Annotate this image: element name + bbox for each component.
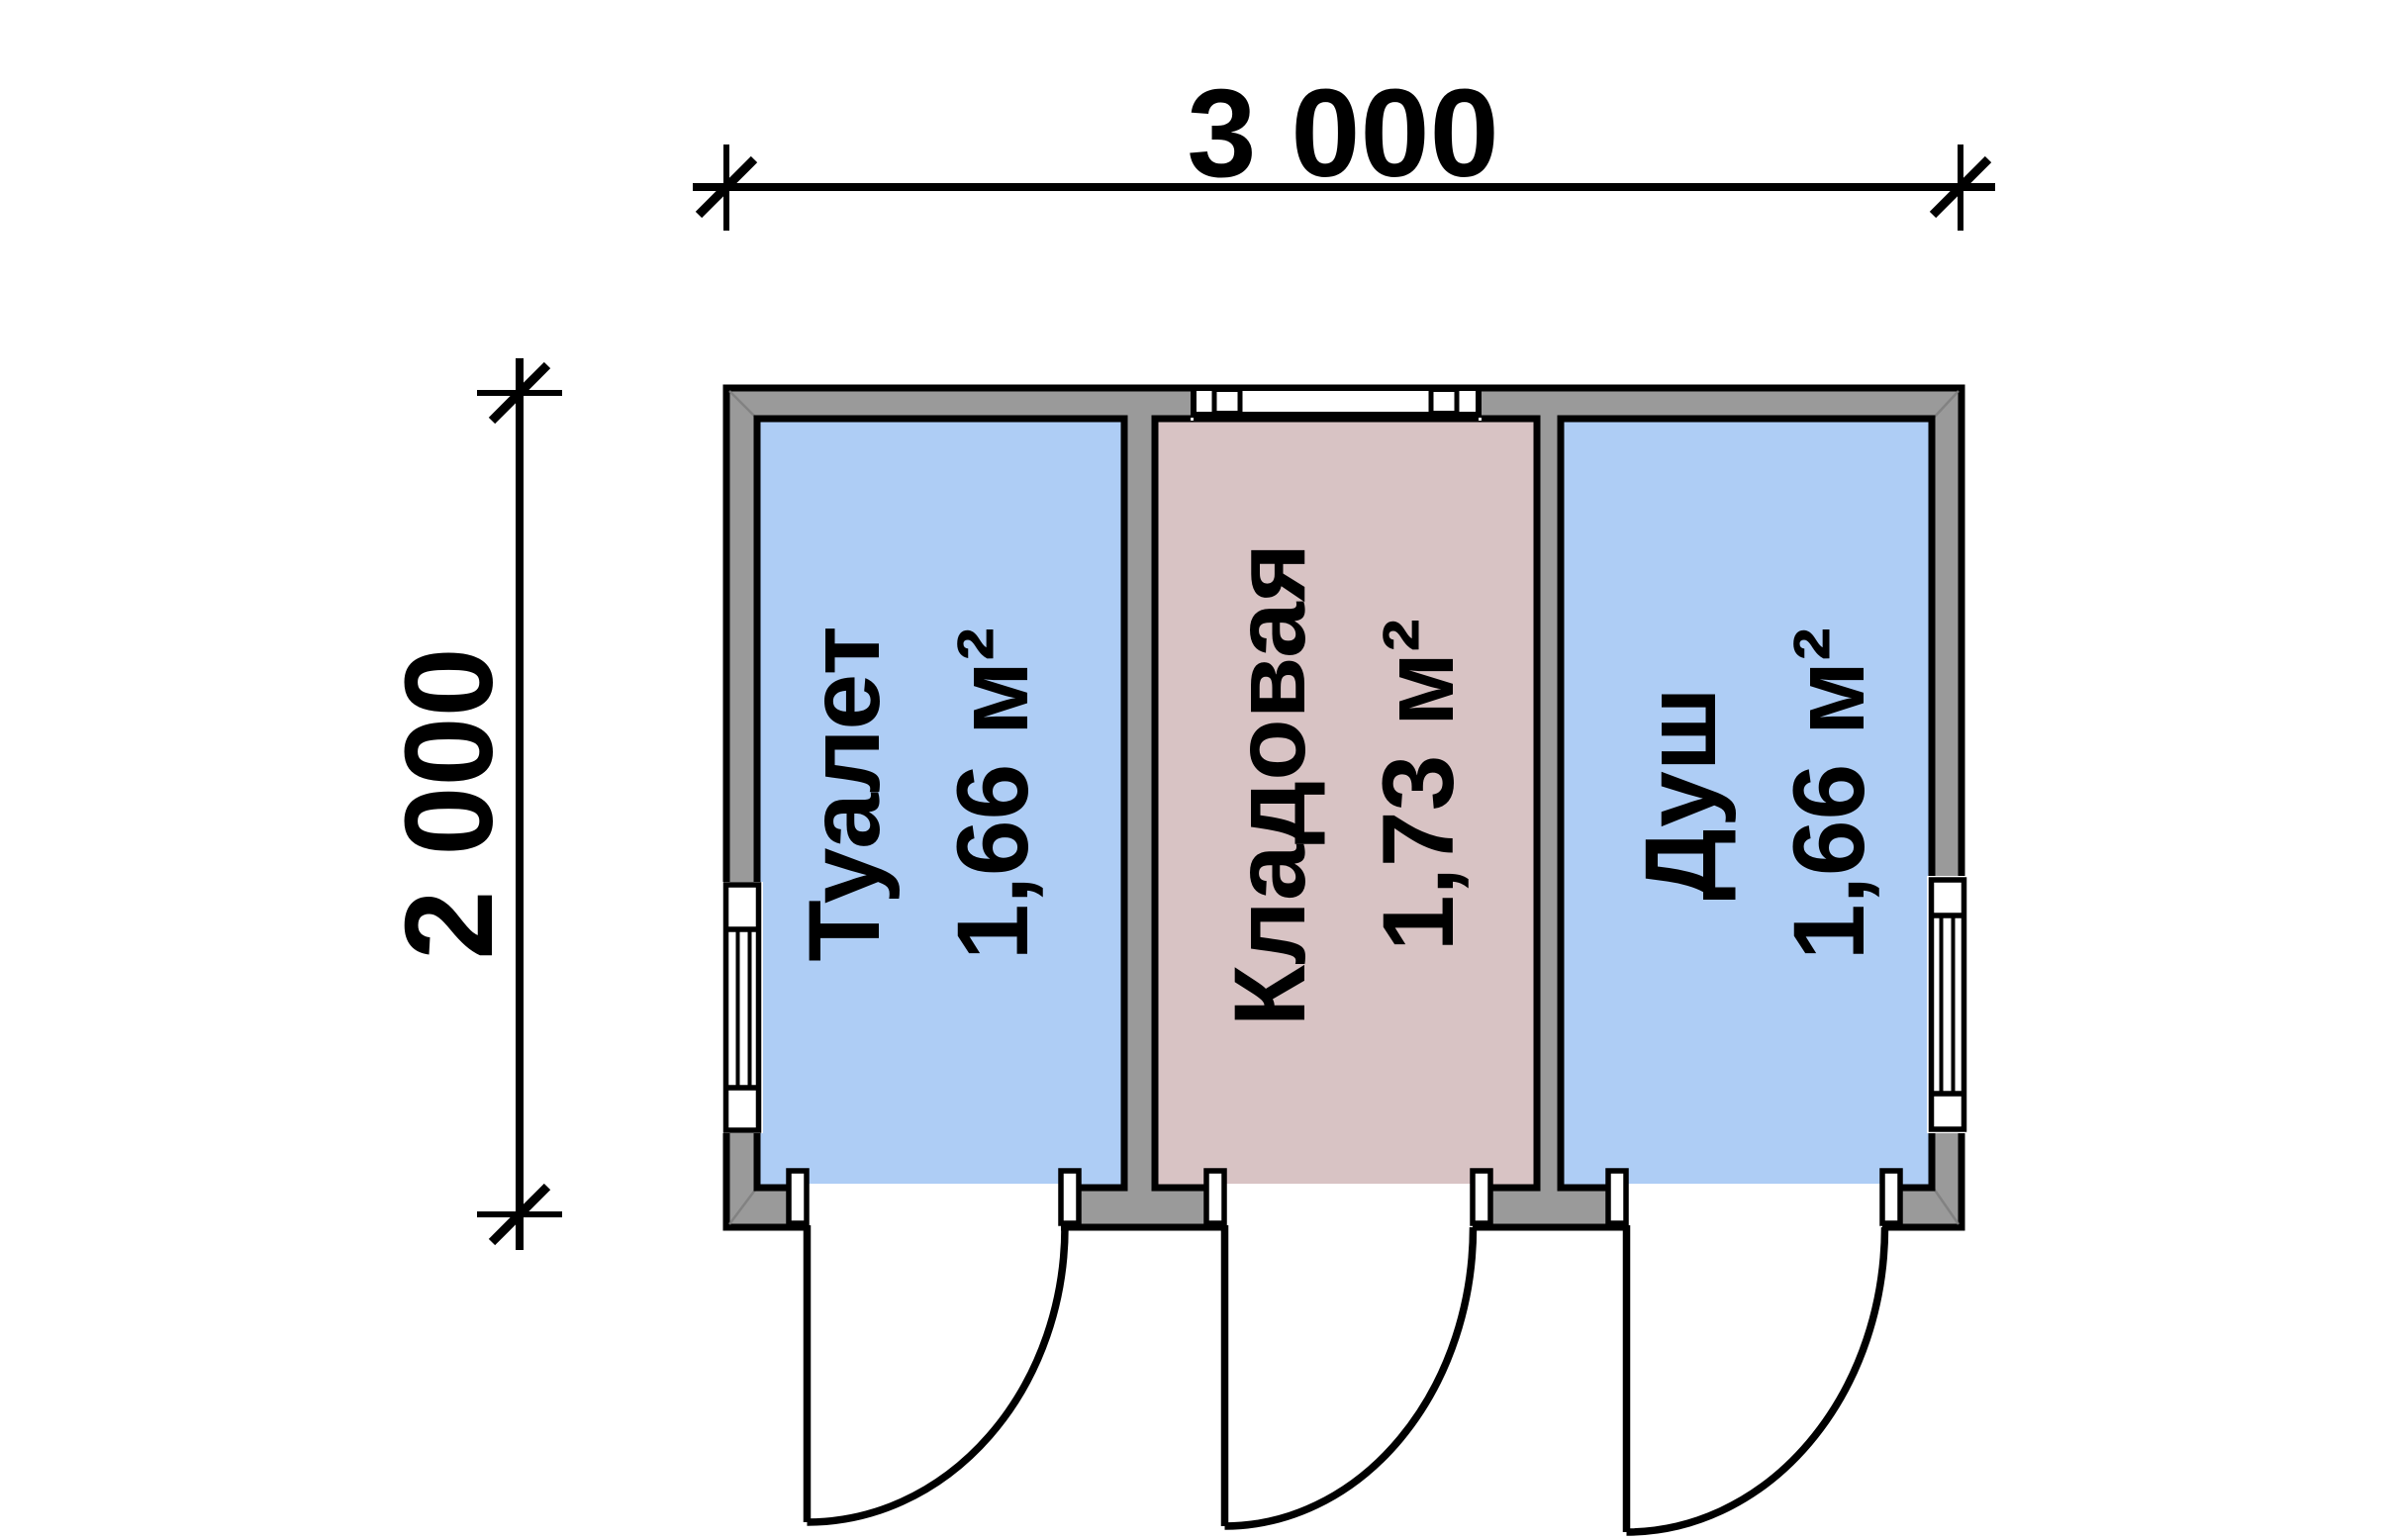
door-opening-1 (807, 1184, 1061, 1236)
room-storage (1155, 419, 1537, 1188)
door3-left-jamb (1608, 1171, 1626, 1223)
door2-left-jamb (1206, 1171, 1224, 1223)
door1-swing-arc (808, 1227, 1066, 1522)
dimension-height: 2 000 (379, 358, 562, 1250)
door3-swing-arc (1627, 1227, 1885, 1532)
room-shower-area: 1,66 м² (1772, 627, 1885, 960)
window-left (721, 882, 763, 1133)
door3-right-jamb (1882, 1171, 1900, 1223)
door1-right-jamb (1061, 1171, 1079, 1223)
door2-right-jamb (1473, 1171, 1490, 1223)
door-opening-2 (1224, 1184, 1473, 1236)
room-storage-name: Кладовая (1213, 543, 1326, 1026)
room-storage-area: 1,73 м² (1362, 619, 1475, 951)
dim-width-label: 3 000 (1187, 63, 1498, 203)
room-toilet-name: Туалет (788, 626, 901, 961)
dimension-width: 3 000 (693, 63, 1995, 231)
floor-plan-drawing: 3 000 2 000 Туалет 1,66 м² Кладовая 1,73… (0, 0, 2393, 1540)
door-3 (1627, 1225, 1885, 1532)
window-right (1927, 876, 1968, 1133)
door-opening-3 (1626, 1184, 1882, 1236)
window-left-frame (726, 885, 759, 1130)
door-1 (808, 1225, 1066, 1522)
window-top-mullion-right (1431, 390, 1457, 414)
door-openings (807, 1184, 1882, 1236)
window-top-mullion-left (1214, 390, 1240, 414)
doors (808, 1225, 1885, 1532)
room-shower-name: Душ (1624, 687, 1737, 901)
dim-height-label: 2 000 (379, 647, 519, 959)
door1-left-jamb (789, 1171, 807, 1223)
door2-swing-arc (1225, 1227, 1474, 1526)
floor-plan-canvas: 3 000 2 000 Туалет 1,66 м² Кладовая 1,73… (0, 0, 2393, 1540)
room-toilet-area: 1,66 м² (936, 627, 1049, 960)
door-2 (1225, 1225, 1474, 1526)
window-top (1191, 385, 1482, 421)
